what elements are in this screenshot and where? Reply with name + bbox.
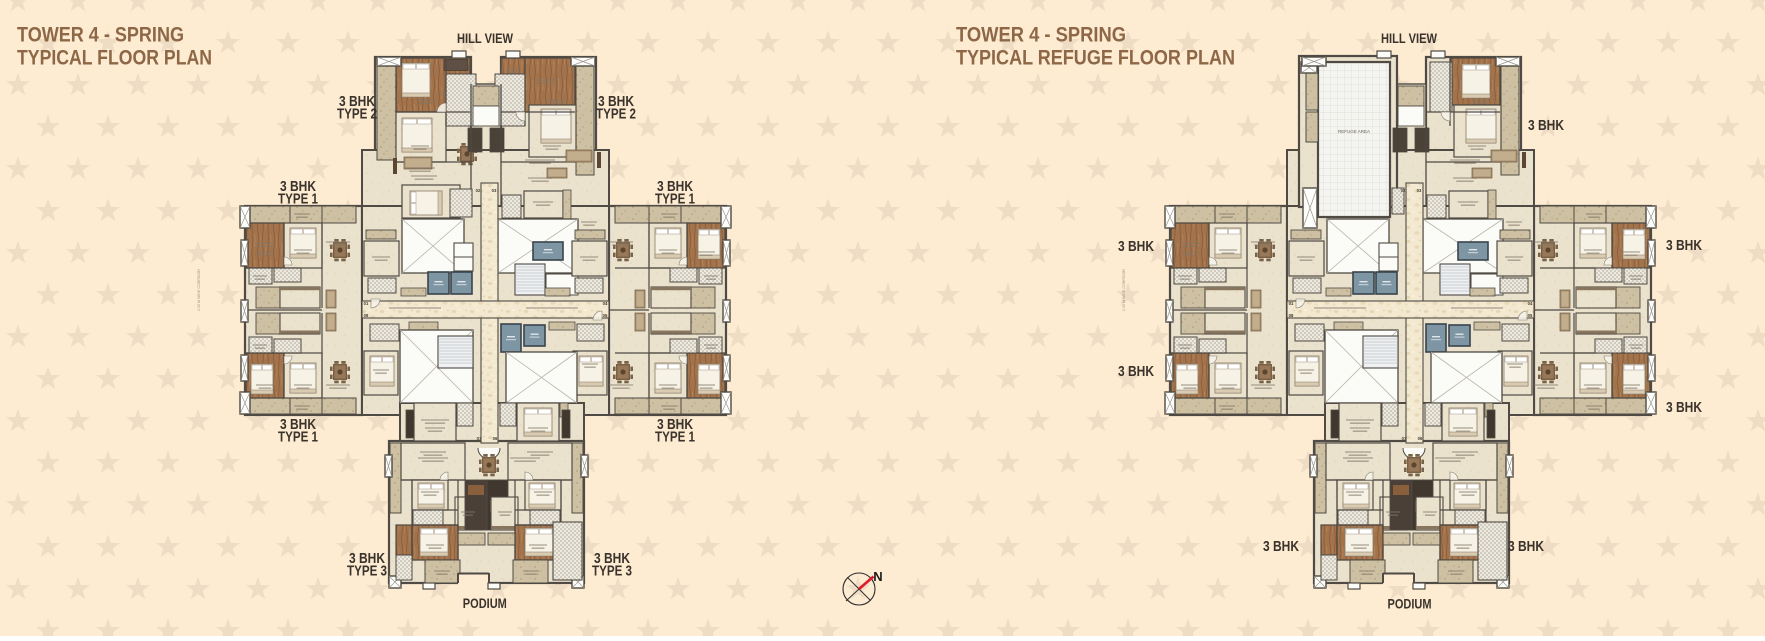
svg-text:TYPE 1: TYPE 1 — [278, 192, 318, 208]
svg-text:2.35 M WIDE CORRIDOR: 2.35 M WIDE CORRIDOR — [197, 269, 201, 311]
svg-text:07: 07 — [1402, 436, 1407, 441]
svg-text:PODIUM: PODIUM — [1388, 596, 1432, 612]
svg-text:08: 08 — [1289, 313, 1294, 318]
svg-text:03: 03 — [1417, 188, 1422, 193]
svg-text:3 BHK: 3 BHK — [1263, 539, 1299, 555]
svg-text:04: 04 — [603, 301, 608, 306]
svg-text:PODIUM: PODIUM — [463, 595, 507, 611]
svg-text:06: 06 — [1418, 436, 1423, 441]
svg-text:HILL VIEW: HILL VIEW — [457, 31, 513, 46]
svg-text:HILL VIEW: HILL VIEW — [1381, 31, 1437, 46]
svg-text:03: 03 — [492, 188, 497, 193]
svg-text:TYPE 3: TYPE 3 — [592, 564, 632, 580]
svg-text:06: 06 — [493, 436, 498, 441]
svg-text:3 BHK: 3 BHK — [1528, 118, 1564, 134]
svg-text:05: 05 — [1528, 313, 1533, 318]
svg-text:3 BHK: 3 BHK — [1666, 238, 1702, 254]
svg-text:3 BHK: 3 BHK — [1118, 364, 1154, 380]
svg-text:3 BHK: 3 BHK — [1666, 400, 1702, 416]
svg-text:02: 02 — [476, 188, 481, 193]
svg-text:3 BHK: 3 BHK — [1508, 539, 1544, 555]
svg-text:TYPE 1: TYPE 1 — [655, 430, 695, 446]
svg-text:08: 08 — [364, 313, 369, 318]
svg-text:07: 07 — [477, 436, 482, 441]
svg-text:TOWER 4 - SPRING: TOWER 4 - SPRING — [956, 24, 1126, 47]
svg-text:TYPE 2: TYPE 2 — [337, 107, 377, 123]
svg-text:TYPE 2: TYPE 2 — [596, 107, 636, 123]
svg-text:01: 01 — [1289, 301, 1294, 306]
svg-text:TYPE 1: TYPE 1 — [278, 430, 318, 446]
svg-text:2.35 M WIDE CORRIDOR: 2.35 M WIDE CORRIDOR — [1122, 269, 1126, 311]
svg-text:TYPICAL REFUGE FLOOR PLAN: TYPICAL REFUGE FLOOR PLAN — [956, 47, 1235, 70]
svg-text:REFUGE AREA: REFUGE AREA — [1338, 129, 1370, 134]
svg-text:TOWER 4 - SPRING: TOWER 4 - SPRING — [17, 24, 184, 47]
svg-text:3 BHK: 3 BHK — [1118, 239, 1154, 255]
svg-text:02: 02 — [1401, 188, 1406, 193]
svg-text:01: 01 — [364, 301, 369, 306]
svg-text:N: N — [873, 569, 882, 584]
svg-text:TYPE 1: TYPE 1 — [655, 192, 695, 208]
svg-text:TYPE 3: TYPE 3 — [347, 564, 387, 580]
svg-text:04: 04 — [1528, 301, 1533, 306]
svg-text:05: 05 — [603, 313, 608, 318]
svg-text:TYPICAL FLOOR PLAN: TYPICAL FLOOR PLAN — [17, 47, 212, 70]
